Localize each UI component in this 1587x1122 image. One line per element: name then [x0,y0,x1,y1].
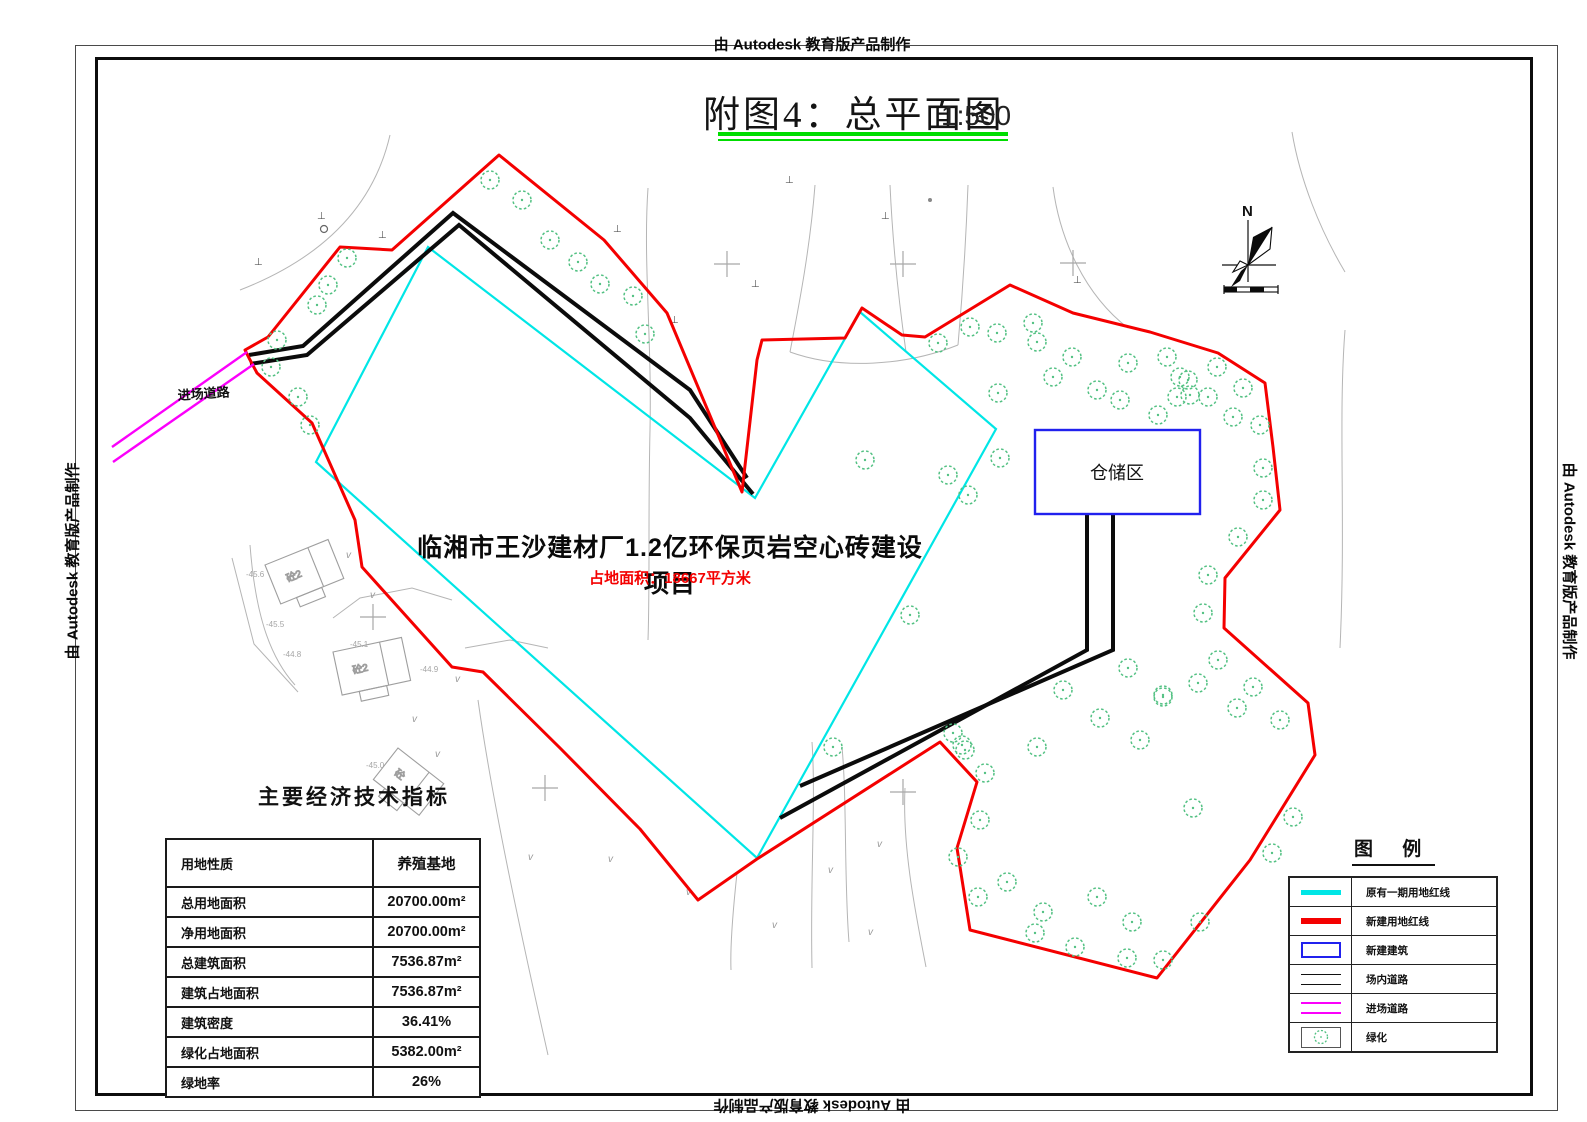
survey-cross [1060,250,1086,276]
tree-center-dot [327,284,329,286]
terrain-mark: ⊥ [613,224,622,235]
grass-mark: v [528,852,534,863]
elevation-label: -44.8 [283,650,302,659]
stat-value: 36.41% [373,1007,480,1037]
tree-center-dot [964,749,966,751]
tree-center-dot [1262,467,1264,469]
tree-center-dot [957,856,959,858]
legend-label: 进场道路 [1352,1001,1496,1016]
stat-label: 总建筑面积 [166,947,373,977]
contour-line [465,640,548,648]
stat-label: 用地性质 [166,839,373,887]
table-row: 建筑密度 36.41% [166,1007,480,1037]
project-area-note: 占地面积：18667平方米 [415,567,925,588]
terrain-mark: ⊥ [881,211,890,222]
contour-line [812,742,814,968]
legend-item: 绿化 [1290,1023,1496,1051]
contour-line [1053,187,1128,328]
legend-symbol-cell [1290,878,1352,906]
tree-center-dot [632,295,634,297]
tree-center-dot [1042,911,1044,913]
tree-center-dot [1162,959,1164,961]
entry-road-line [113,364,254,462]
building-annex [359,686,388,702]
tree-center-dot [270,366,272,368]
tree-center-dot [309,424,311,426]
greenery-icon [1301,1027,1341,1048]
survey-cross [890,779,916,805]
legend-label: 新建建筑 [1352,943,1496,958]
tree-center-dot [1166,356,1168,358]
tree-center-dot [1096,389,1098,391]
tree-center-dot [952,732,954,734]
tree-center-dot [1259,424,1261,426]
existing-building: 砼2 [333,637,413,704]
stat-label: 绿化占地面积 [166,1037,373,1067]
contour-line [790,345,958,363]
tree-center-dot [1006,881,1008,883]
contour-line [1340,330,1345,648]
tree-center-dot [316,304,318,306]
tree-center-dot [1119,399,1121,401]
tree-center-dot [997,392,999,394]
tree-center-dot [577,261,579,263]
tree-center-dot [969,326,971,328]
drawing-sheet: 由 Autodesk 教育版产品制作 由 Autodesk 教育版产品制作 由 … [0,0,1587,1122]
title-underline-1 [718,132,1008,136]
tree-center-dot [937,342,939,344]
scale-bar [1224,285,1278,294]
grass-mark: v [772,920,778,931]
contour-line [478,700,548,1055]
north-blade-w [1233,261,1248,272]
grass-mark: v [412,714,418,725]
stats-table: 用地性质 养殖基地 总用地面积 20700.00m² 净用地面积 20700.0… [165,838,481,1098]
tree-center-dot [1207,396,1209,398]
tree-center-dot [1036,341,1038,343]
legend-item: 新建建筑 [1290,936,1496,965]
legend-label: 场内道路 [1352,972,1496,987]
red-line-icon [1301,918,1341,924]
tree-center-dot [1207,574,1209,576]
tree-center-dot [999,457,1001,459]
legend-label: 绿化 [1352,1030,1496,1045]
survey-cross [360,604,386,630]
tree-center-dot [1292,816,1294,818]
legend: 原有一期用地红线 新建用地红线 新建建筑 场内道路 进场道路 [1288,876,1498,1053]
tree-center-dot [967,494,969,496]
contour-line [790,185,815,352]
tree-center-dot [947,474,949,476]
table-row: 绿地率 26% [166,1067,480,1097]
tree-center-dot [1032,322,1034,324]
terrain-mark: ⊥ [378,230,387,241]
table-row: 净用地面积 20700.00m² [166,917,480,947]
tree-center-dot [1139,739,1141,741]
legend-title: 图 例 [1352,834,1435,866]
tree-center-dot [1279,719,1281,721]
tree-center-dot [1232,416,1234,418]
legend-symbol-cell [1290,907,1352,935]
legend-label: 原有一期用地红线 [1352,885,1496,900]
legend-symbol-cell [1290,965,1352,993]
tree-center-dot [1099,717,1101,719]
tree-center-dot [1036,746,1038,748]
table-row: 建筑占地面积 7536.87m² [166,977,480,1007]
tree-center-dot [1271,852,1273,854]
scale-label: 1:500 [941,100,1011,132]
table-row: 用地性质 养殖基地 [166,839,480,887]
terrain-mark: ⊥ [1073,275,1082,286]
tree-center-dot [1236,707,1238,709]
grass-mark: v [435,749,441,760]
tree-center-dot [1252,686,1254,688]
tree-center-dot [1192,807,1194,809]
tree-center-dot [1162,696,1164,698]
grass-mark: v [455,674,461,685]
tree-center-dot [644,333,646,335]
tree-center-dot [961,744,963,746]
tree-center-dot [1062,689,1064,691]
tree-center-dot [1176,396,1178,398]
legend-symbol-cell [1290,1023,1352,1051]
tree-center-dot [1262,499,1264,501]
legend-symbol-cell [1290,994,1352,1022]
contour-line [905,788,926,967]
tree-center-dot [1202,612,1204,614]
tree-center-dot [599,283,601,285]
stat-label: 净用地面积 [166,917,373,947]
terrain-mark: ⊥ [785,175,794,186]
legend-label: 新建用地红线 [1352,914,1496,929]
stat-label: 建筑占地面积 [166,977,373,1007]
tree-center-dot [1242,387,1244,389]
stat-label: 建筑密度 [166,1007,373,1037]
scale-bar-seg2 [1250,287,1264,292]
stat-value: 20700.00m² [373,887,480,917]
tree-center-dot [832,746,834,748]
tree-center-dot [489,179,491,181]
table-row: 绿化占地面积 5382.00m² [166,1037,480,1067]
tree-center-dot [297,396,299,398]
tree-center-dot [549,239,551,241]
tree-center-dot [1127,667,1129,669]
building-label: 砼2 [284,567,304,585]
stats-table-title: 主要经济技术指标 [258,781,450,811]
grass-mark: v [346,550,352,561]
legend-item: 进场道路 [1290,994,1496,1023]
legend-item: 场内道路 [1290,965,1496,994]
survey-cross [532,775,558,801]
north-arrow: N [1222,203,1278,294]
tree-center-dot [1034,932,1036,934]
terrain-mark: ⊥ [317,211,326,222]
tree-center-dot [864,459,866,461]
entry-road-icon [1301,1002,1341,1014]
grass-mark: v [608,854,614,865]
grass-mark: v [868,927,874,938]
stat-value: 5382.00m² [373,1037,480,1067]
stat-value: 7536.87m² [373,977,480,1007]
legend-item: 新建用地红线 [1290,907,1496,936]
legend-symbol-cell [1290,936,1352,964]
site-road-icon [1301,974,1341,985]
existing-building: 砼2 [265,540,348,614]
tree-center-dot [1157,414,1159,416]
tree-center-dot [909,614,911,616]
table-row: 总用地面积 20700.00m² [166,887,480,917]
tree-center-dot [1216,366,1218,368]
stat-value: 养殖基地 [373,839,480,887]
building-label: 砼2 [351,661,369,677]
dot-mark [928,198,932,202]
scale-bar-seg1 [1224,287,1237,292]
tree-center-dot [979,819,981,821]
tree-center-dot [1052,376,1054,378]
stat-value: 20700.00m² [373,917,480,947]
grass-mark: v [877,839,883,850]
project-title: 临湘市王沙建材厂1.2亿环保页岩空心砖建设项目 [415,528,925,600]
stat-value: 26% [373,1067,480,1097]
tree-center-dot [1197,682,1199,684]
contour-line [731,873,737,970]
survey-cross [714,251,740,277]
stat-value: 7536.87m² [373,947,480,977]
stat-label: 绿地率 [166,1067,373,1097]
building-divider [380,642,389,685]
cyan-line-icon [1301,890,1341,895]
legend-item: 原有一期用地红线 [1290,878,1496,907]
tree-center-dot [1217,659,1219,661]
tree-center-dot [1131,921,1133,923]
tree-center-dot [1071,356,1073,358]
building-annex [296,587,325,606]
entry-road-label: 进场道路 [177,384,231,403]
site-road-line [249,213,747,478]
stat-label: 总用地面积 [166,887,373,917]
tree-icon [1310,1029,1332,1045]
storage-area-label: 仓储区 [1090,463,1144,483]
tree-center-dot [521,199,523,201]
elevation-label: -45.6 [246,570,265,579]
terrain-mark: ⊥ [751,279,760,290]
north-label: N [1242,203,1253,220]
tree-center-dot [1187,379,1189,381]
grass-mark: v [828,865,834,876]
contour-line [1292,132,1345,272]
small-circle-mark [321,226,328,233]
survey-cross [890,251,916,277]
tree-center-dot [1127,362,1129,364]
tree-center-dot [984,772,986,774]
tree-center-dot [1074,946,1076,948]
tree-center-dot [346,257,348,259]
terrain-mark: ⊥ [254,257,263,268]
tree-center-dot [1096,896,1098,898]
tree-center-dot [1237,536,1239,538]
table-row: 总建筑面积 7536.87m² [166,947,480,977]
tree-center-dot [1126,957,1128,959]
tree-center-dot [1199,921,1201,923]
building-outline [333,637,411,695]
tree-center-dot [1189,394,1191,396]
title-underline-2 [718,139,1008,141]
elevation-label: -44.9 [420,665,439,674]
contour-line [842,747,849,942]
building-rect-icon [1301,942,1341,958]
tree-center-dot [996,332,998,334]
building-divider [308,548,324,587]
tree-center-dot [977,896,979,898]
elevation-label: -45.5 [266,620,285,629]
tree-center-dot [276,339,278,341]
